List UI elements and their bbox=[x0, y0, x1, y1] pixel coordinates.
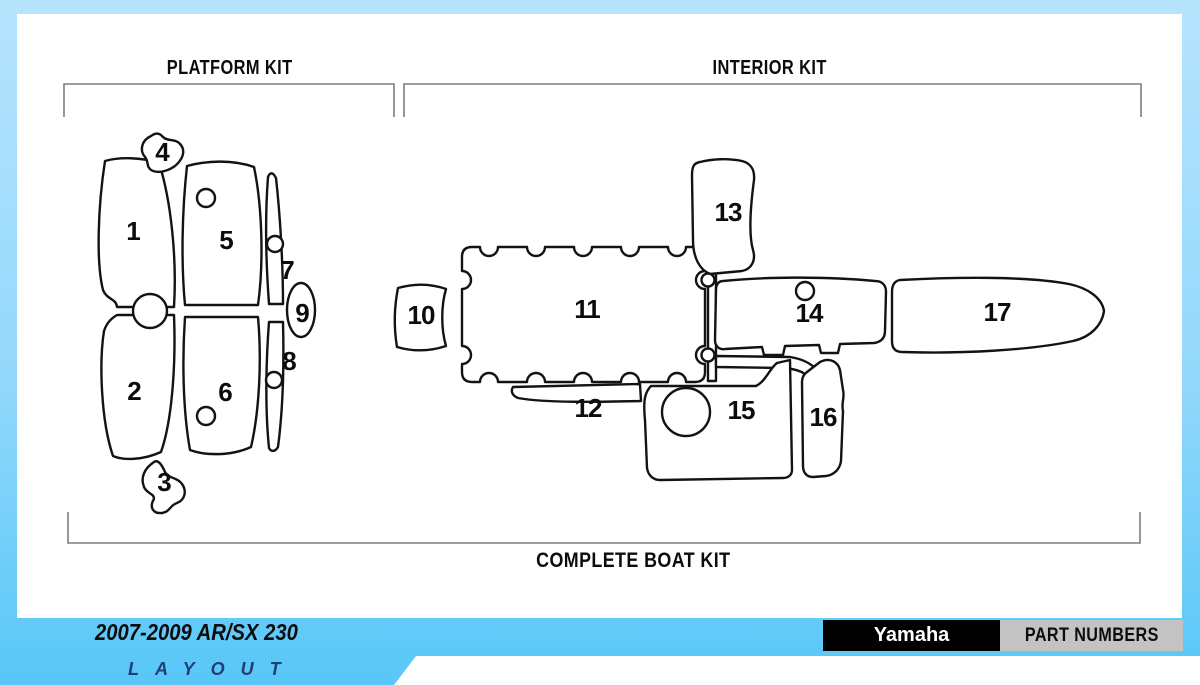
runner-bump-top bbox=[702, 274, 715, 287]
boat-kit-layout-page: { "titles": { "platform_kit": "PLATFORM … bbox=[0, 0, 1200, 685]
interior-kit-bracket bbox=[404, 84, 1141, 117]
part-10-label: 10 bbox=[408, 300, 435, 330]
part-12: 12 bbox=[512, 384, 641, 423]
part-13: 13 bbox=[692, 159, 754, 274]
part-9: 9 bbox=[287, 283, 315, 337]
part-9-label: 9 bbox=[295, 298, 309, 328]
part-5: 5 bbox=[183, 162, 262, 305]
complete-boat-kit-bracket bbox=[68, 512, 1140, 543]
interior-kit-title-text: INTERIOR KIT bbox=[713, 57, 827, 80]
part-16-label: 16 bbox=[810, 402, 837, 432]
part-14: 14 bbox=[715, 278, 886, 355]
part-17-label: 17 bbox=[984, 297, 1011, 327]
part-8: 8 bbox=[266, 322, 296, 451]
part-2: 2 bbox=[101, 315, 174, 459]
part-11-label: 11 bbox=[574, 294, 600, 324]
part-2-label: 2 bbox=[127, 376, 141, 406]
part-6-hole bbox=[197, 407, 215, 425]
part-16: 16 bbox=[802, 360, 844, 477]
part-8-nub bbox=[266, 372, 282, 388]
runner-bump-bottom bbox=[702, 349, 715, 362]
complete-boat-kit-title: COMPLETE BOAT KIT bbox=[483, 549, 783, 573]
platform-center-hole bbox=[133, 294, 167, 328]
part-10: 10 bbox=[395, 285, 446, 351]
part-17: 17 bbox=[892, 278, 1104, 353]
part-6-label: 6 bbox=[218, 377, 232, 407]
part-1: 1 bbox=[99, 158, 175, 307]
part-7: 7 bbox=[266, 173, 294, 304]
part-15-hole bbox=[662, 388, 710, 436]
part-11: 11 bbox=[462, 247, 705, 382]
brand-badge: Yamaha bbox=[823, 620, 1000, 651]
platform-kit-title-text: PLATFORM KIT bbox=[167, 57, 293, 80]
part-14-label: 14 bbox=[796, 298, 824, 328]
part-13-label: 13 bbox=[715, 197, 742, 227]
part-6: 6 bbox=[183, 317, 259, 454]
part-numbers-badge-text: PART NUMBERS bbox=[1024, 620, 1158, 651]
platform-kit-title: PLATFORM KIT bbox=[80, 57, 380, 80]
part-4-label: 4 bbox=[155, 137, 170, 167]
platform-center-hole-outline bbox=[133, 294, 167, 328]
part-1-label: 1 bbox=[126, 216, 140, 246]
part-4: 4 bbox=[142, 134, 183, 172]
model-year-text: 2007-2009 AR/SX 230 bbox=[95, 619, 298, 646]
part-7-nub bbox=[267, 236, 283, 252]
part-3: 3 bbox=[143, 461, 185, 513]
platform-kit-bracket bbox=[64, 84, 394, 117]
layout-word: LAYOUT bbox=[128, 659, 297, 680]
interior-kit-title: INTERIOR KIT bbox=[620, 57, 920, 80]
part-3-label: 3 bbox=[157, 467, 171, 497]
complete-boat-kit-title-text: COMPLETE BOAT KIT bbox=[536, 549, 730, 573]
part-7-label: 7 bbox=[280, 255, 294, 285]
part-15-label: 15 bbox=[728, 395, 755, 425]
footer-white-wedge bbox=[394, 656, 1200, 685]
part-8-label: 8 bbox=[282, 346, 296, 376]
boat-kit-diagram: 1 2 3 4 5 6 7 8 9 10 bbox=[0, 0, 1200, 685]
brand-badge-text: Yamaha bbox=[874, 624, 950, 646]
part-12-label: 12 bbox=[575, 393, 602, 423]
part-numbers-badge: PART NUMBERS bbox=[1000, 620, 1183, 651]
part-5-hole bbox=[197, 189, 215, 207]
part-5-label: 5 bbox=[219, 225, 233, 255]
